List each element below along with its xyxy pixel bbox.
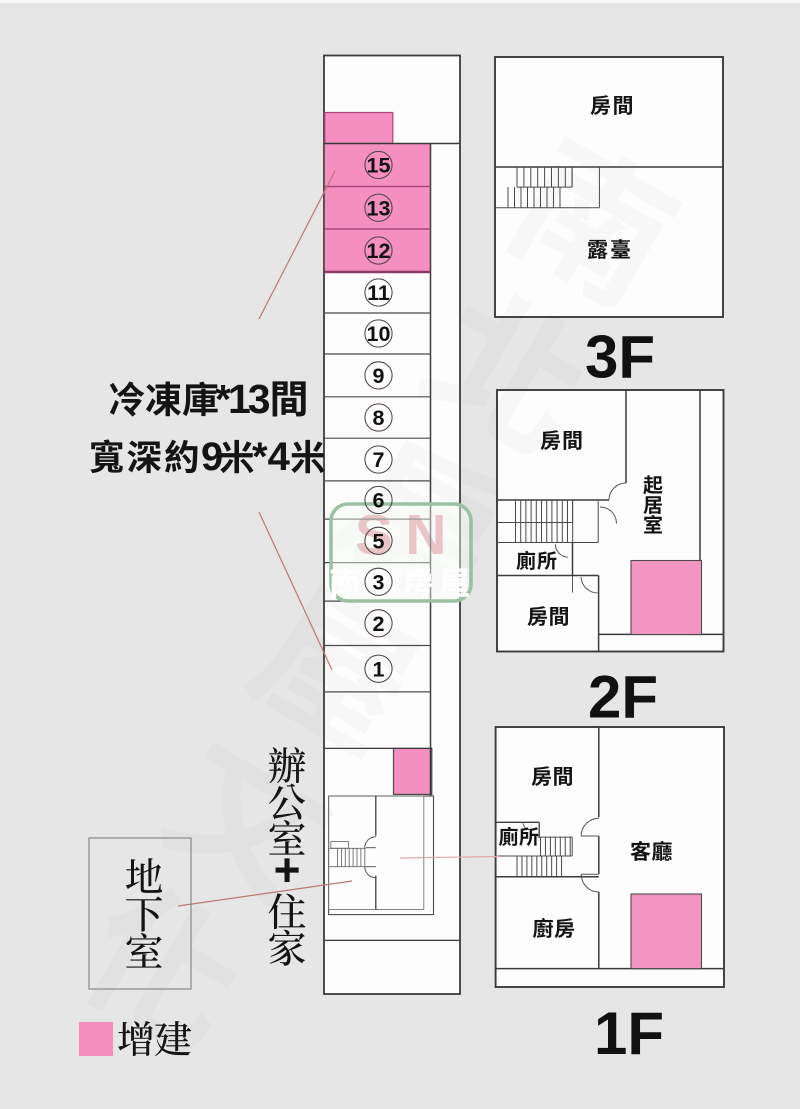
svg-text:5: 5 <box>373 530 385 554</box>
svg-text:7: 7 <box>373 448 385 472</box>
svg-text:9: 9 <box>201 435 223 479</box>
svg-text:3F: 3F <box>585 324 655 391</box>
svg-text:2F: 2F <box>588 664 658 731</box>
svg-text:11: 11 <box>367 281 390 305</box>
svg-text:10: 10 <box>367 322 391 346</box>
svg-text:3: 3 <box>373 571 385 595</box>
svg-text:8: 8 <box>373 406 385 430</box>
svg-text:9: 9 <box>373 364 385 388</box>
svg-text:15: 15 <box>367 154 391 178</box>
svg-text:12: 12 <box>367 239 391 263</box>
svg-text:*13: *13 <box>215 376 270 422</box>
svg-text:13: 13 <box>367 196 391 220</box>
svg-text:*4: *4 <box>252 435 291 479</box>
svg-text:6: 6 <box>373 489 385 513</box>
svg-text:2: 2 <box>373 612 385 636</box>
svg-text:1: 1 <box>373 657 385 681</box>
svg-text:+: + <box>274 844 301 896</box>
svg-text:1F: 1F <box>594 1000 664 1067</box>
